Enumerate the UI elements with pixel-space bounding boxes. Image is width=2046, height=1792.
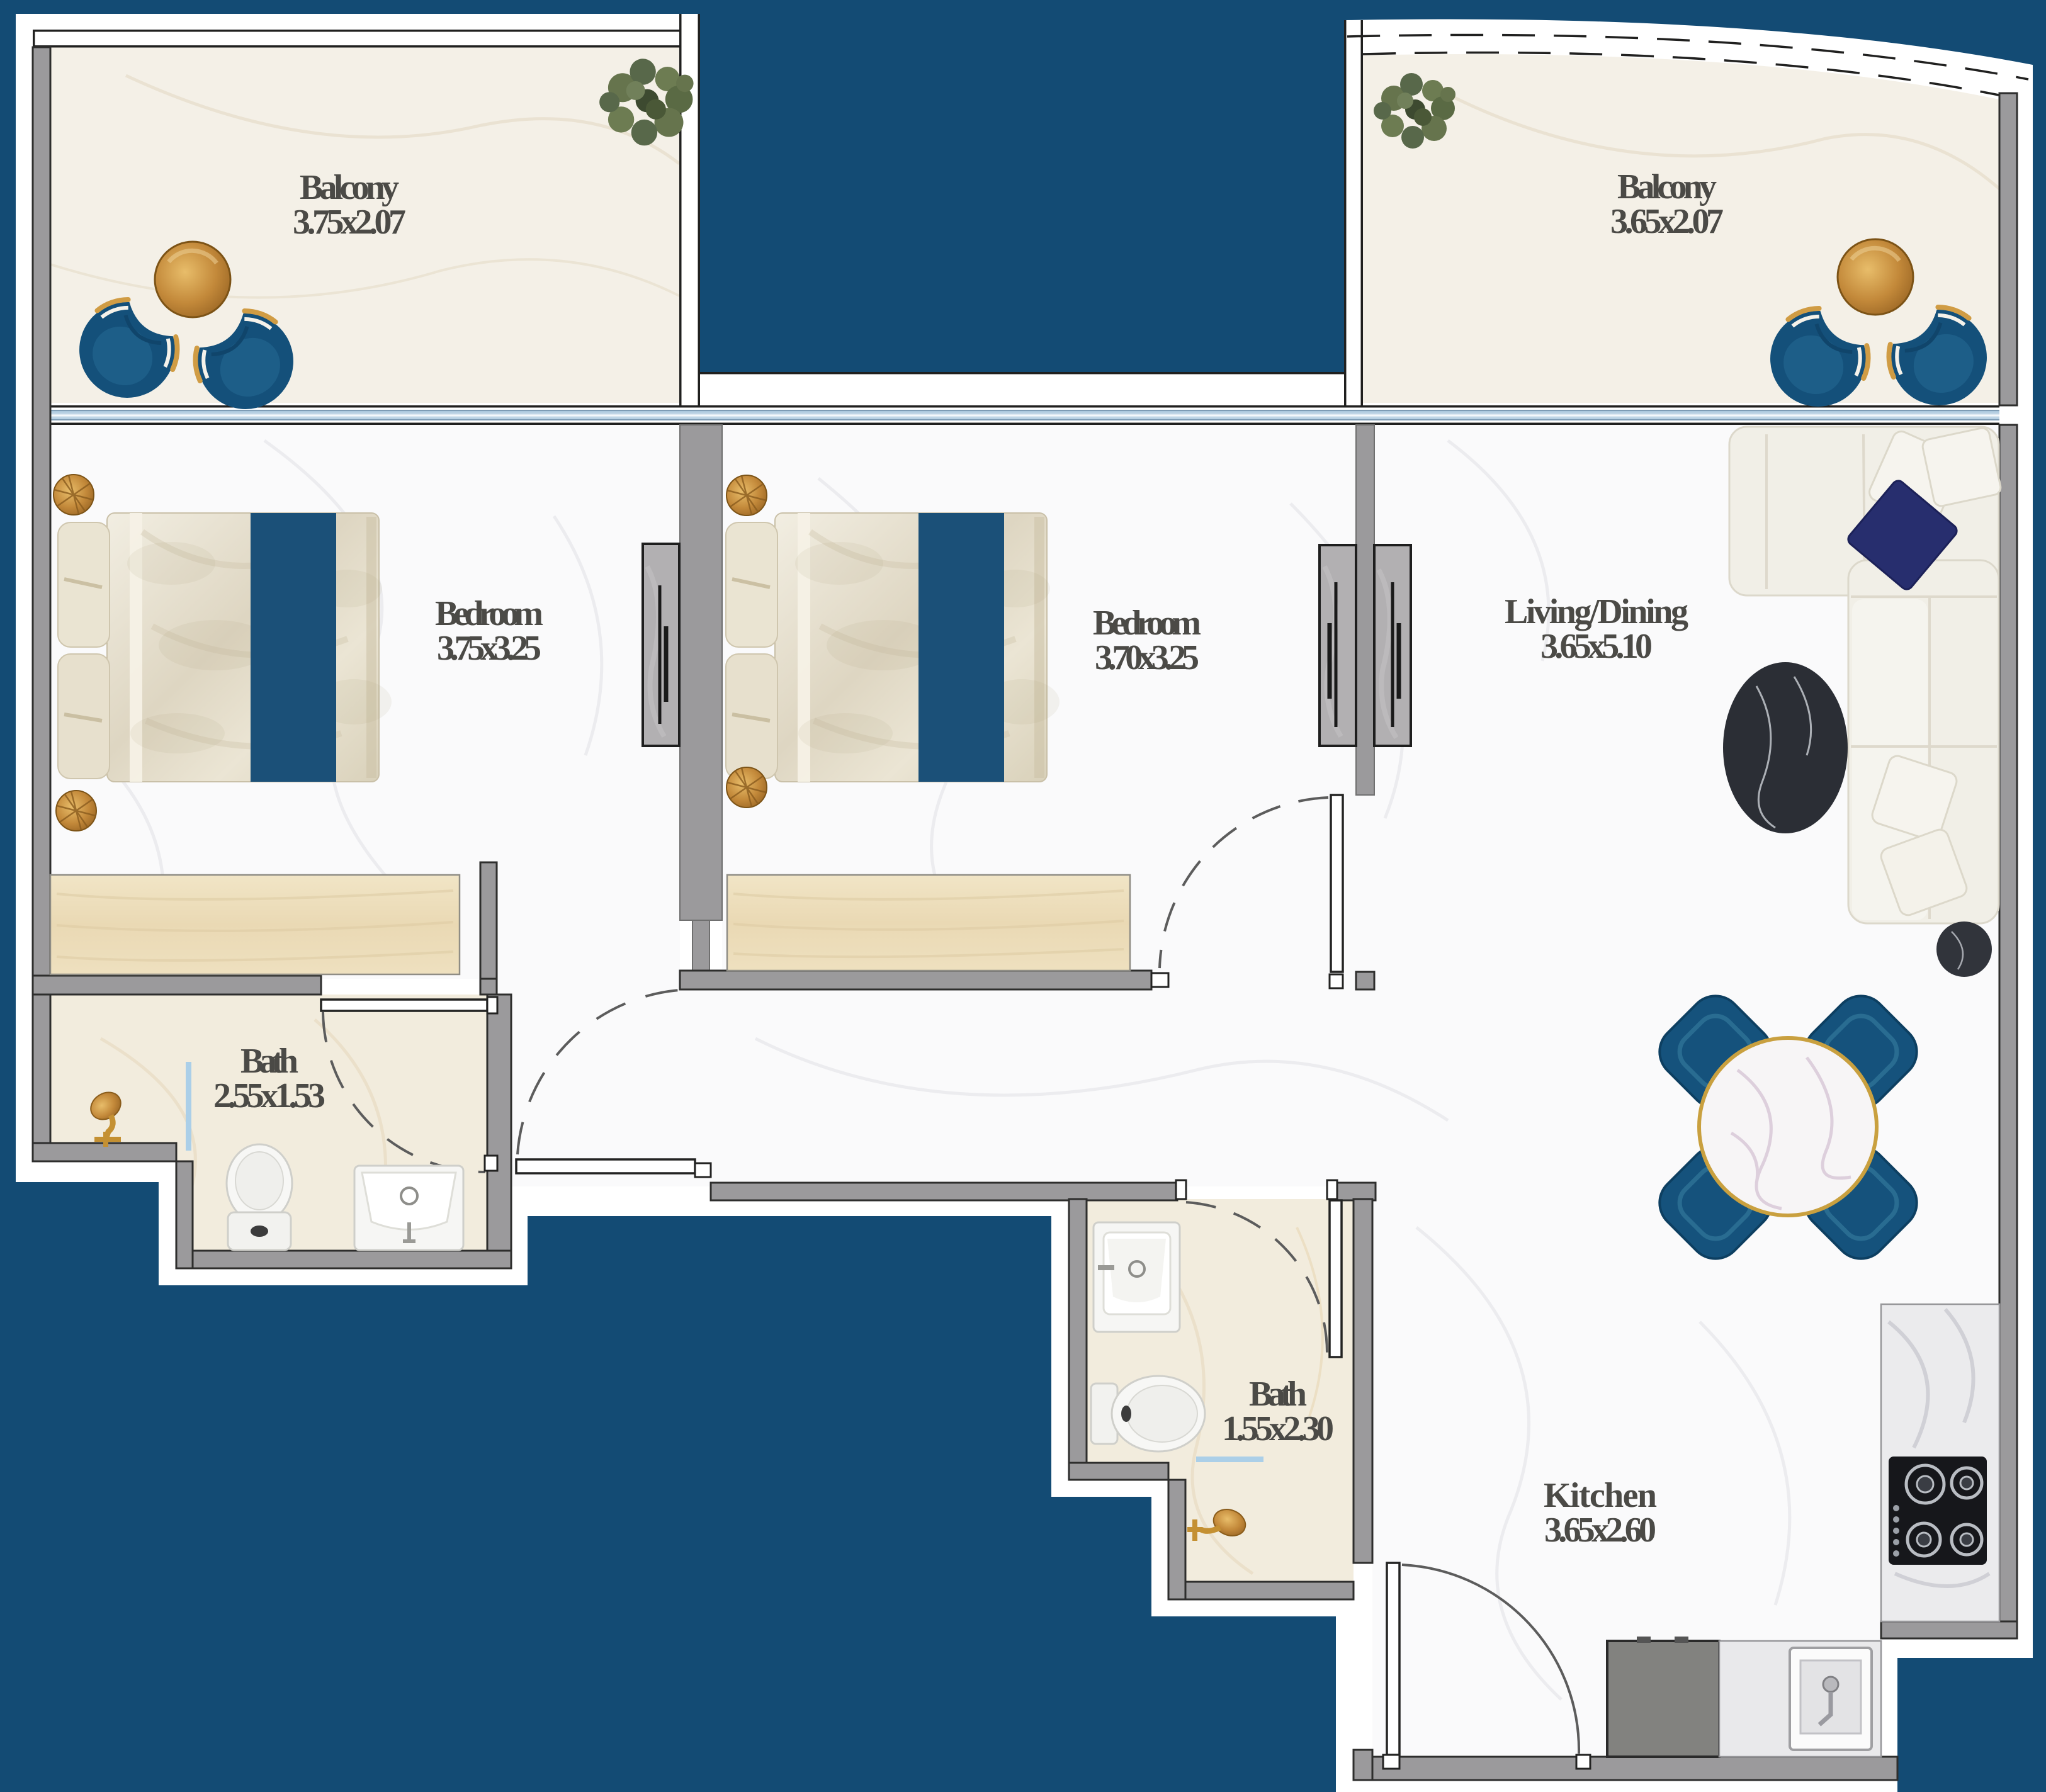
svg-text:Kitchen: Kitchen	[1544, 1476, 1657, 1515]
svg-text:3.65x2.60: 3.65x2.60	[1544, 1511, 1656, 1550]
svg-text:Living/Dining: Living/Dining	[1505, 592, 1688, 631]
svg-text:Balcony: Balcony	[1617, 167, 1717, 206]
svg-text:1.55x2.30: 1.55x2.30	[1222, 1409, 1334, 1448]
svg-text:Bath: Bath	[240, 1042, 298, 1081]
svg-text:Bedroom: Bedroom	[435, 594, 543, 633]
svg-text:Bedroom: Bedroom	[1093, 604, 1201, 643]
svg-text:3.65x2.07: 3.65x2.07	[1610, 202, 1724, 241]
svg-text:3.70x3.25: 3.70x3.25	[1095, 638, 1199, 677]
svg-text:3.65x5.10: 3.65x5.10	[1540, 627, 1653, 666]
svg-text:Balcony: Balcony	[300, 168, 399, 207]
svg-text:3.75x3.25: 3.75x3.25	[437, 629, 541, 668]
svg-text:Bath: Bath	[1249, 1375, 1307, 1414]
svg-text:3.75x2.07: 3.75x2.07	[293, 203, 406, 242]
svg-text:2.55x1.53: 2.55x1.53	[213, 1076, 325, 1115]
